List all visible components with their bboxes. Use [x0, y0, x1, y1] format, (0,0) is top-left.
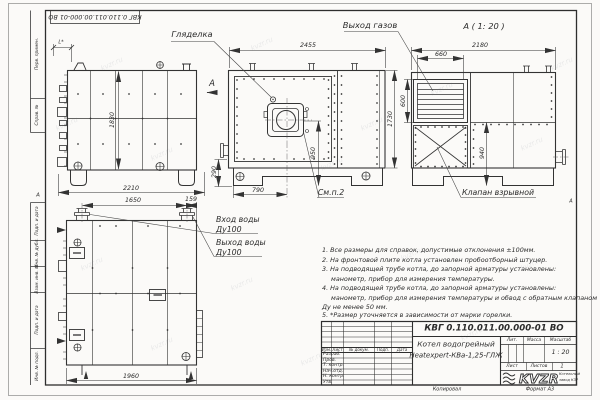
tb-doc-number: КВГ 0.110.011.00.000-01 ВО — [424, 325, 563, 334]
side-view — [58, 61, 197, 186]
callout-water-inlet-dn: Ду100 — [216, 226, 242, 234]
dim-base-height: 290 — [212, 166, 218, 178]
frame-field-inv-podl: Инв. № подл. — [35, 351, 39, 381]
note-line-8: 5. *Размер уточняется в зависимости от м… — [322, 312, 512, 318]
tb-sheets-label: Листов — [531, 364, 548, 369]
callout-see-note: См.п.2 — [318, 189, 344, 197]
note-line-5: 4. На подводящей трубе котла, до запорно… — [322, 285, 556, 291]
view-a — [412, 66, 570, 186]
dim-viewa-width: 2180 — [472, 43, 488, 49]
dim-front-height: 1730 — [388, 111, 394, 127]
tb-lit-label: Лит. — [507, 338, 517, 343]
tb-scale-label: Масштаб — [550, 338, 571, 343]
format-label: Формат А3 — [526, 387, 554, 392]
callout-water-outlet-dn: Ду100 — [216, 249, 242, 257]
dim-louver-height: 600 — [401, 95, 407, 107]
dim-burner-axis-height: 950 — [311, 147, 317, 159]
dim-burner-offset: 790 — [252, 188, 264, 194]
rear-view-dimensions — [67, 202, 197, 384]
note-line-4: манометр, прибор для измерения температу… — [331, 276, 495, 282]
dim-nozzle-spacing: 1650 — [125, 198, 141, 204]
dim-rear-width: 1960 — [123, 374, 139, 380]
tb-row-razrab: Разраб. — [323, 353, 341, 358]
note-line-6: манометр, прибор для измерения температу… — [331, 295, 597, 301]
zone-marker-left: А — [36, 193, 40, 199]
callout-water-inlet: Вход воды — [216, 216, 260, 224]
logo-sub-1: Котельный — [559, 373, 580, 377]
view-a-dimensions — [404, 47, 556, 186]
zone-marker-right: А — [569, 200, 572, 205]
tb-product-name-2: Heatexpert-КВа-1,25-ГЛЖ — [409, 353, 502, 360]
logo-text: KVZR — [519, 371, 559, 386]
tb-row-utv: Утв. — [323, 381, 332, 386]
frame-field-vzam-inv: Взам. инв. № — [35, 264, 39, 293]
frame-field-podp-data-2: Подп. и дата — [35, 305, 39, 334]
dim-lower-panel-height: 940 — [479, 147, 485, 159]
frame-field-sprav-no: Справ. № — [35, 105, 39, 126]
tb-header-col-data: Дата — [397, 348, 407, 352]
drawing-sheet: KVZR КВГ 0.110.011.00.000-01 ВО Перв. пр… — [0, 0, 600, 400]
tb-row-tkontr: Т. контр. — [323, 364, 344, 369]
front-view — [221, 64, 386, 199]
callout-gas-outlet: Выход газов — [343, 21, 397, 29]
kvzr-logo: KVZR — [503, 371, 559, 386]
tb-sheet-label: Лист — [506, 364, 517, 369]
tb-header-col-podp: Подп. — [377, 348, 389, 352]
tb-product-name-1: Котел водогрейный — [417, 340, 495, 347]
dim-front-width: 2455 — [300, 43, 316, 49]
dim-side-width: 2210 — [123, 186, 139, 192]
note-line-1: 1. Все размеры для справок, допустимые о… — [322, 247, 535, 253]
view-a-title: А ( 1: 20 ) — [463, 22, 504, 30]
tb-sheets-value: 1 — [560, 364, 563, 369]
note-line-2: 2. На фронтовой плите котла установлен п… — [322, 257, 547, 263]
frame-field-perv-primen: Перв. примен. — [35, 38, 39, 70]
tb-mass-label: Масса — [527, 338, 541, 343]
rear-view — [57, 203, 203, 375]
dim-nozzle-edge-offset: 159 — [185, 197, 197, 203]
tb-scale-value: 1 : 20 — [552, 350, 570, 356]
logo-sub-2: завод КЗР — [559, 379, 578, 383]
frame-field-podp-data-1: Подп. и дата — [35, 206, 39, 235]
callout-water-outlet: Выход воды — [216, 239, 266, 247]
tb-row-nkontr: Н. контр. — [323, 375, 345, 380]
callout-peephole: Гляделка — [171, 30, 212, 38]
frame-field-inv-dubl: Инв. № дубл. — [35, 238, 39, 267]
copied-label: Копировал — [433, 387, 462, 392]
doc-number-top-label: КВГ 0.110.011.00.000-01 ВО — [48, 14, 141, 20]
dim-side-height: 1830 — [110, 112, 116, 128]
dim-side-asterisk: L* — [58, 41, 63, 46]
callout-explosion-valve: Клапан взрывной — [462, 189, 534, 197]
view-direction-label: А — [209, 80, 215, 89]
tb-header-col-docum: № докум. — [349, 348, 369, 352]
note-line-7: Ду не менее 50 мм. — [322, 304, 388, 310]
dim-louver-width: 660 — [435, 52, 447, 58]
